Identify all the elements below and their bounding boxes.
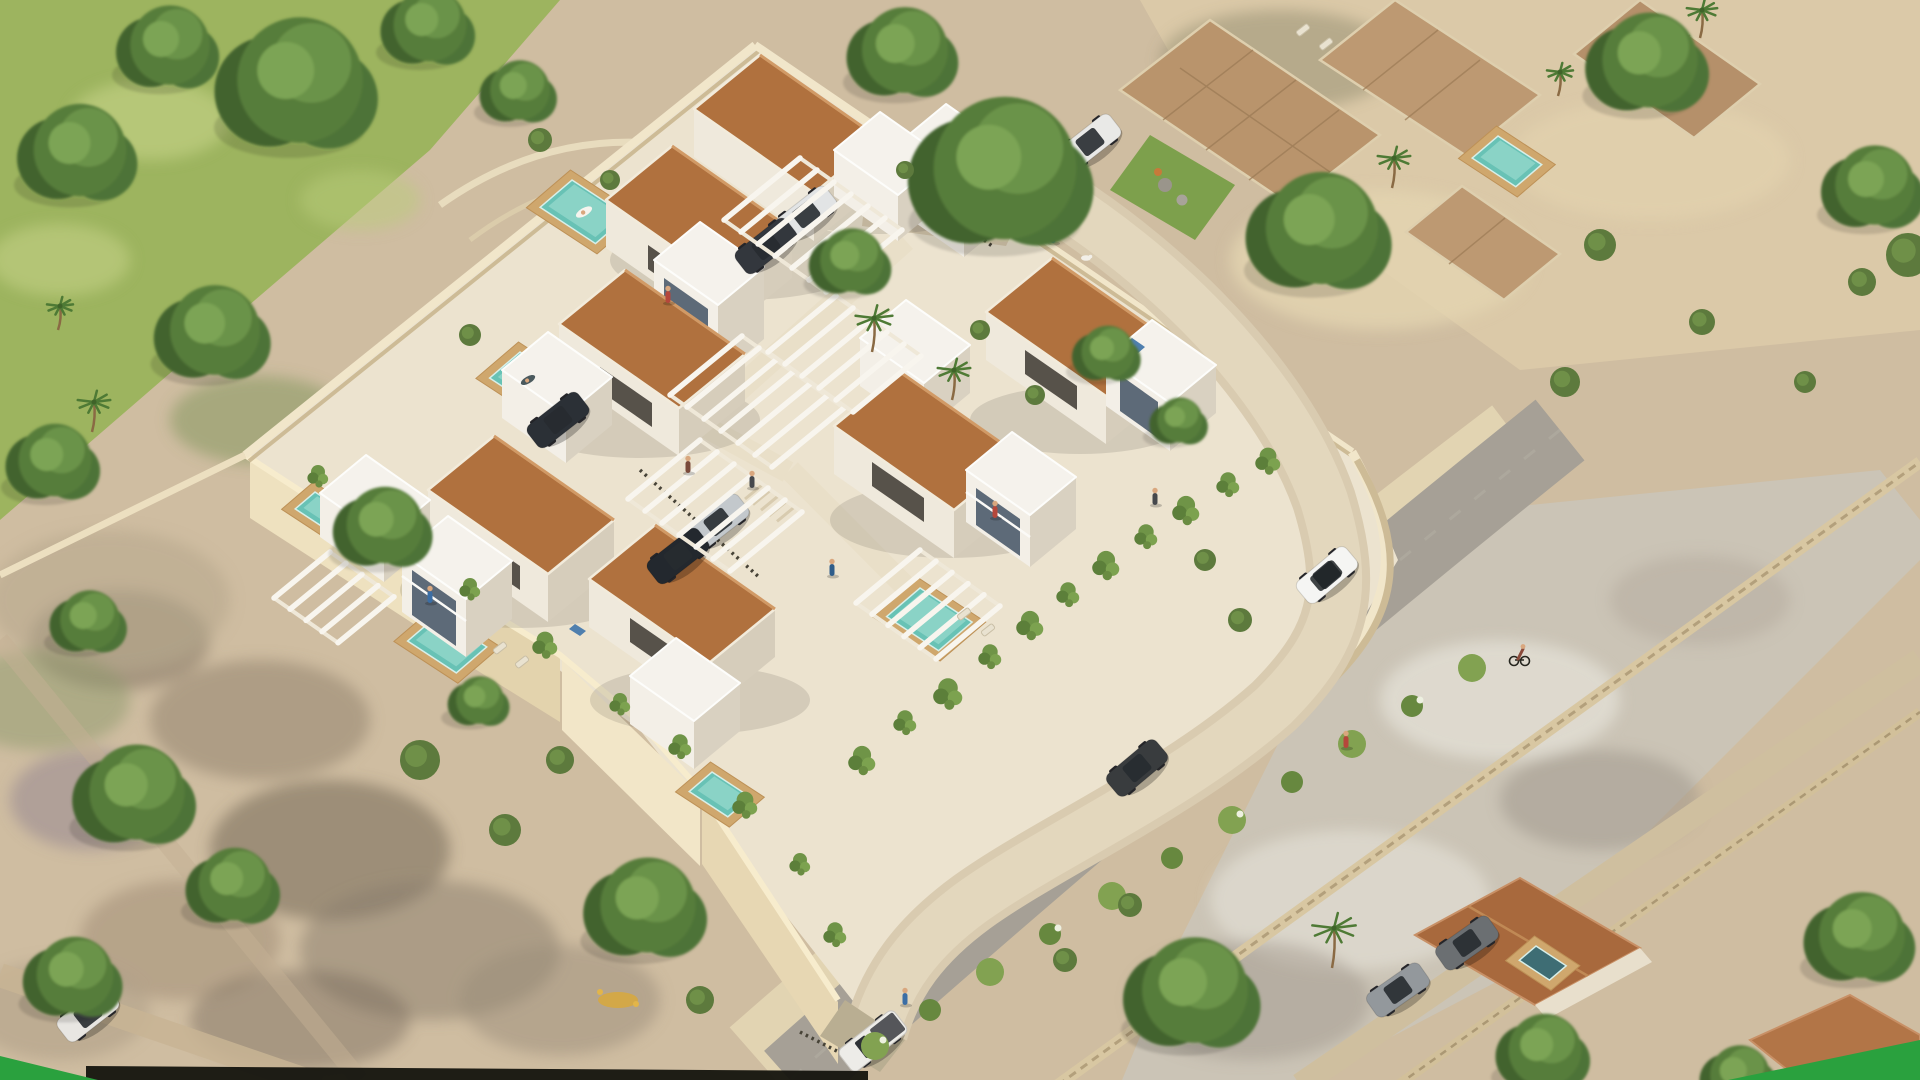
shrub: [1118, 893, 1142, 917]
roadside-hedge: [1281, 771, 1303, 793]
shrub: [528, 128, 552, 152]
shrub: [1025, 385, 1045, 405]
shrub: [1584, 229, 1616, 261]
roadside-hedge: [976, 958, 1004, 986]
shrub: [1689, 309, 1715, 335]
shrub: [1053, 948, 1077, 972]
roadside-hedge: [1338, 730, 1366, 758]
shrub: [489, 814, 521, 846]
roadside-hedge: [861, 1032, 889, 1060]
roadside-hedge: [1458, 654, 1486, 682]
shrub: [1848, 268, 1876, 296]
roadside-hedge: [1218, 806, 1246, 834]
shrub: [896, 161, 914, 179]
shrub: [1794, 371, 1816, 393]
shrub: [1228, 608, 1252, 632]
shrub: [600, 170, 620, 190]
roadside-hedge: [919, 999, 941, 1021]
shrub: [400, 740, 440, 780]
shrub: [1550, 367, 1580, 397]
shrub: [459, 324, 481, 346]
shrub: [1194, 549, 1216, 571]
aerial-render-canvas: Aerial 3D render of a modern villa devel…: [0, 0, 1920, 1080]
tree: [376, 0, 475, 70]
shrub: [686, 986, 714, 1014]
shrub: [546, 746, 574, 774]
roadside-hedge: [1161, 847, 1183, 869]
shrub: [970, 320, 990, 340]
archviz-render: Aerial 3D render of a modern villa devel…: [0, 0, 1920, 1080]
